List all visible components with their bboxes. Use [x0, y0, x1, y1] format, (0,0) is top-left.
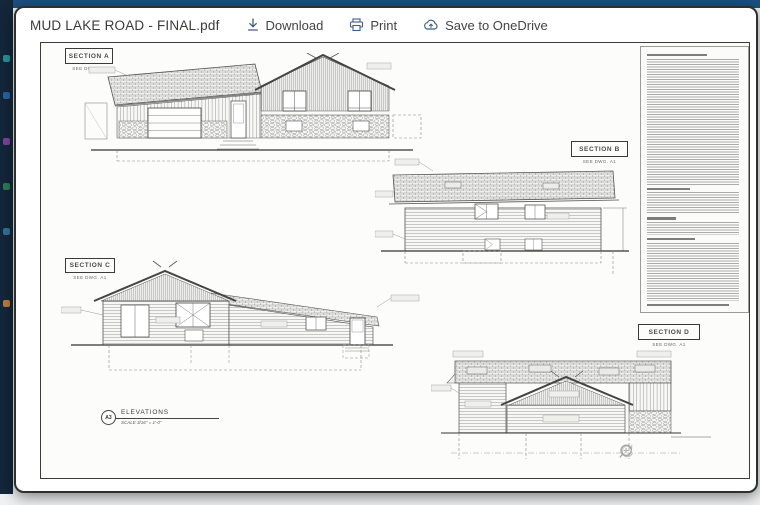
- garage-door: [148, 108, 201, 138]
- notes-heading: [647, 188, 690, 190]
- notes-heading: [647, 54, 707, 56]
- title-block-line: [115, 418, 219, 419]
- section-d-label-box: SECTION D: [638, 324, 700, 340]
- notes-heading: [647, 304, 729, 306]
- file-preview-modal: MUD LAKE ROAD - FINAL.pdf Download Print…: [14, 6, 758, 493]
- notes-text-block: [647, 243, 739, 301]
- upper-gable: [255, 53, 395, 111]
- app-bar-icon: [3, 228, 10, 235]
- grade-line: [91, 150, 413, 161]
- general-notes-panel: [640, 46, 749, 313]
- save-label: Save to OneDrive: [445, 18, 548, 33]
- titleblock-scale: SCALE 3/16" = 1'-0": [121, 420, 161, 425]
- download-label: Download: [266, 18, 324, 33]
- side-wall: [405, 208, 601, 251]
- print-button[interactable]: Print: [349, 18, 397, 33]
- section-d-elevation: [431, 341, 715, 471]
- file-title: MUD LAKE ROAD - FINAL.pdf: [30, 18, 220, 33]
- cloud-icon: [423, 18, 439, 32]
- rotate-icon[interactable]: [618, 443, 636, 461]
- rear-upper-wall: [103, 301, 229, 345]
- notes-text-block: [647, 192, 739, 214]
- titleblock-title: ELEVATIONS: [121, 409, 169, 416]
- download-button[interactable]: Download: [246, 18, 324, 33]
- section-d-label: SECTION D: [649, 329, 690, 336]
- grade-line: [441, 433, 711, 459]
- app-bar-icon: [3, 55, 10, 62]
- sheet-title-block: A3 ELEVATIONS SCALE 3/16" = 1'-0": [101, 407, 231, 429]
- print-label: Print: [370, 18, 397, 33]
- preview-header: MUD LAKE ROAD - FINAL.pdf Download Print…: [16, 8, 756, 42]
- pdf-sheet: SECTION A SEE DWG. A1: [40, 42, 750, 479]
- sheet-ref-bubble: A3: [101, 410, 116, 425]
- section-c-elevation: [61, 255, 429, 381]
- app-sidebar: [0, 0, 13, 494]
- app-bar-icon: [3, 183, 10, 190]
- notes-heading: [647, 217, 676, 219]
- save-to-onedrive-button[interactable]: Save to OneDrive: [423, 18, 548, 33]
- side-roof: [389, 171, 619, 204]
- stone-base: [261, 115, 389, 138]
- app-bar-icon: [3, 138, 10, 145]
- notes-heading: [647, 238, 695, 240]
- section-a-elevation: [71, 53, 426, 165]
- notes-text-block: [647, 59, 739, 185]
- download-icon: [246, 18, 260, 32]
- grade-line: [71, 345, 393, 370]
- printer-icon: [349, 18, 364, 32]
- app-bar-icon: [3, 92, 10, 99]
- front-gable: [501, 377, 633, 433]
- notes-text-block: [647, 222, 739, 235]
- rear-gable: [94, 271, 236, 301]
- app-bar-icon: [3, 300, 10, 307]
